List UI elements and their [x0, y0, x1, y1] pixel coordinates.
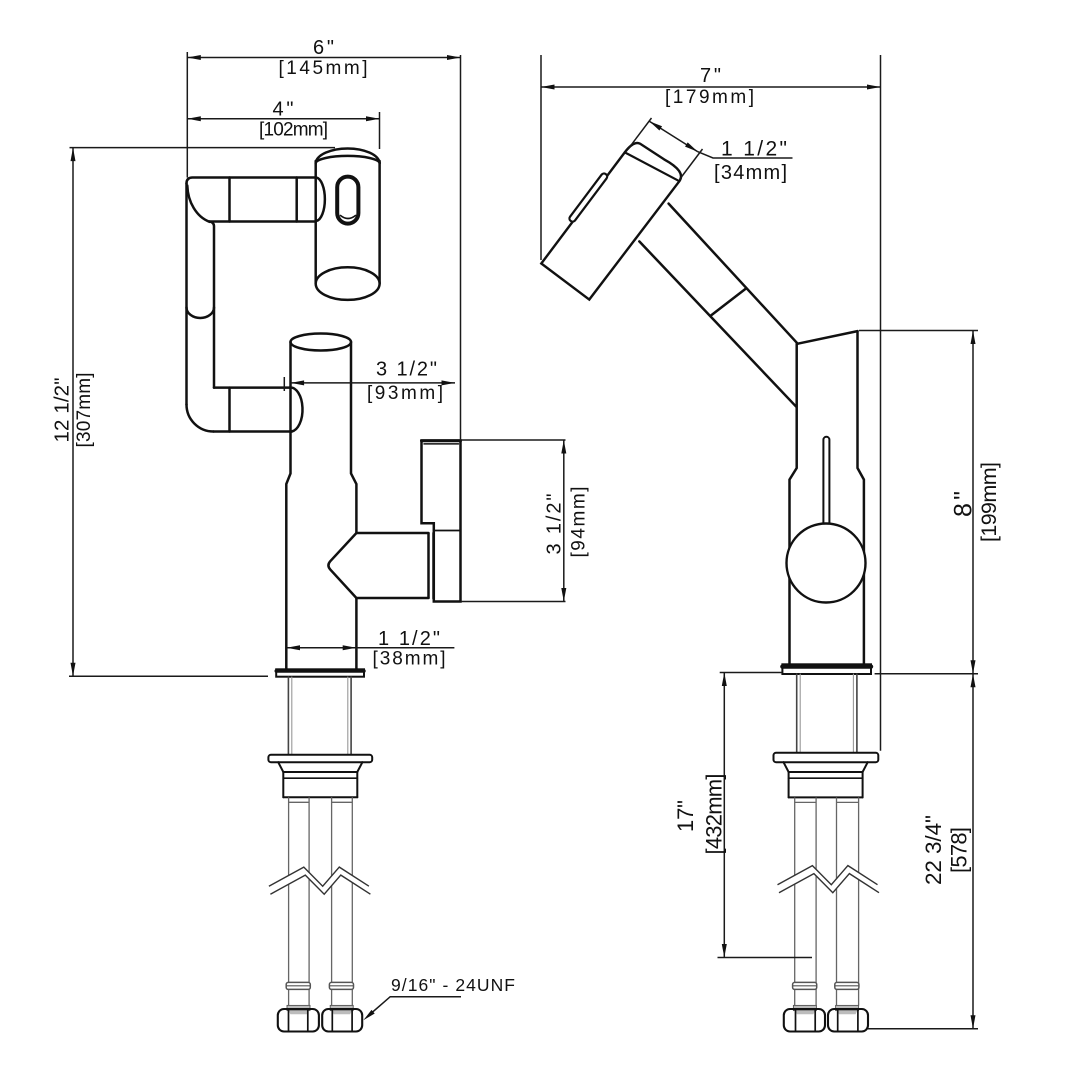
svg-text:9/16" - 24UNF: 9/16" - 24UNF [391, 975, 515, 995]
svg-text:8": 8" [950, 491, 978, 517]
svg-text:6": 6" [313, 37, 334, 59]
svg-text:3 1/2": 3 1/2" [376, 358, 437, 380]
svg-text:[578]: [578] [947, 827, 972, 873]
svg-text:[102mm]: [102mm] [259, 120, 328, 141]
svg-text:[199mm]: [199mm] [977, 462, 1001, 542]
svg-text:17": 17" [673, 800, 698, 832]
svg-text:4": 4" [273, 99, 294, 121]
svg-text:[94mm]: [94mm] [569, 487, 590, 558]
svg-text:[34mm]: [34mm] [714, 162, 787, 184]
svg-text:3 1/2": 3 1/2" [544, 494, 566, 555]
svg-text:1 1/2": 1 1/2" [721, 138, 787, 161]
svg-text:[179mm]: [179mm] [665, 87, 754, 108]
svg-text:[145mm]: [145mm] [279, 58, 368, 79]
svg-text:[38mm]: [38mm] [373, 649, 446, 670]
svg-text:[432mm]: [432mm] [702, 774, 727, 855]
svg-text:7": 7" [700, 65, 721, 87]
svg-text:1 1/2": 1 1/2" [378, 628, 440, 650]
svg-text:[307mm]: [307mm] [74, 373, 95, 448]
svg-text:[93mm]: [93mm] [367, 383, 443, 404]
svg-text:12 1/2": 12 1/2" [51, 378, 74, 443]
svg-text:22 3/4": 22 3/4" [921, 815, 946, 885]
